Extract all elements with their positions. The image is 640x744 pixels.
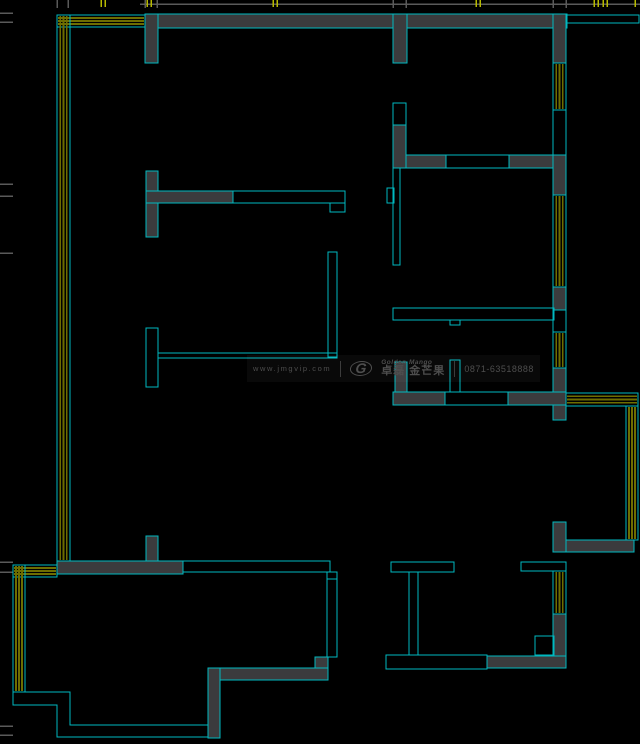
watermark-logo-icon: G [349, 361, 373, 376]
thin-wall-horiz [393, 308, 554, 320]
top-wall-ext [567, 15, 639, 23]
t-column-stem [409, 572, 418, 655]
watermark-divider [454, 361, 455, 377]
top-wall-stub-mid [393, 14, 407, 63]
t-wall-vert [146, 171, 158, 237]
l-wall-vert [328, 252, 337, 357]
watermark-phone: 0871-63518888 [464, 364, 534, 374]
watermark-brand: Golden Mango 卓磊 金芒果 [381, 360, 445, 378]
thin-wall-tab [450, 320, 460, 325]
watermark-website: www.jmgvip.com [253, 364, 331, 373]
right-wall-open-1 [553, 110, 566, 155]
t-wall-ext [233, 191, 345, 203]
t-wall-horiz [146, 191, 233, 203]
bl-thin-vert [327, 579, 337, 657]
watermark-brand-cn: 卓磊 金芒果 [381, 366, 445, 377]
t-column-top [391, 562, 454, 572]
bl-bottom-bar [208, 668, 328, 680]
vert-open-box [393, 103, 406, 125]
watermark-divider [340, 361, 341, 377]
room-divider-vert [393, 125, 406, 168]
notch-square [535, 636, 554, 655]
lower-left-stub [146, 536, 158, 561]
top-wall-stub-left [145, 14, 158, 63]
room-divider-right [509, 155, 553, 168]
bl-outline-outer [13, 692, 208, 737]
right-l-vert [553, 522, 566, 552]
bath-wall-left [393, 392, 445, 405]
column-stub [146, 328, 158, 387]
lower-left-wall [57, 561, 183, 574]
bl-step-down [327, 572, 337, 579]
bl-vert-bar [208, 668, 220, 738]
right-wall-seg-1 [553, 155, 566, 195]
bottom-bar-right [487, 656, 566, 668]
bl-outline-inner [25, 692, 208, 725]
thin-wall-vert [393, 168, 400, 265]
watermark: www.jmgvip.com G Golden Mango 卓磊 金芒果 087… [247, 355, 540, 382]
t-wall-end-notch [330, 203, 345, 212]
top-wall [145, 14, 567, 28]
divider-open [446, 155, 509, 168]
bottom-bar-open [386, 655, 487, 669]
right-l-horiz [566, 540, 634, 552]
right-wall-seg-2 [553, 287, 566, 310]
right-wall-open-2 [553, 310, 566, 332]
bl-window-line [183, 561, 330, 572]
bath-wall-right [508, 392, 566, 405]
bath-open-mid [445, 392, 508, 405]
bl-step-block [315, 657, 328, 668]
right-wall-top-corner [553, 14, 566, 63]
lower-right-cap [521, 562, 566, 571]
